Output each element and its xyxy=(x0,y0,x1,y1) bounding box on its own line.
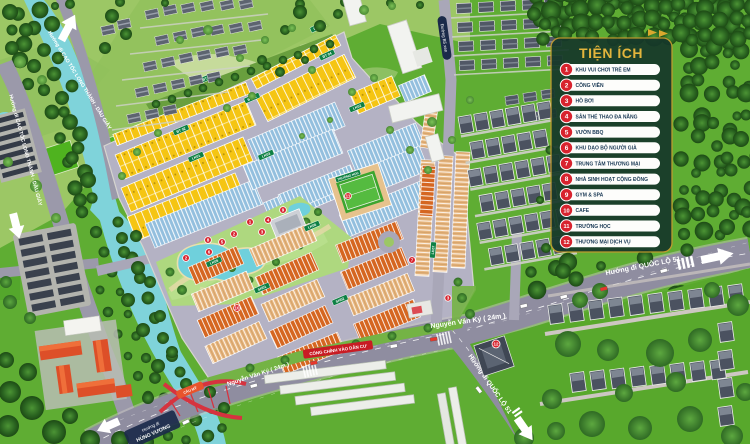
svg-text:KHU DẠO BỘ NGƯỜI GIÀ: KHU DẠO BỘ NGƯỜI GIÀ xyxy=(576,144,638,152)
svg-text:3: 3 xyxy=(565,98,569,105)
svg-text:11: 11 xyxy=(564,224,570,230)
svg-text:SÂN THỂ THAO ĐA NĂNG: SÂN THỂ THAO ĐA NĂNG xyxy=(576,113,638,120)
svg-text:TRƯỜNG HỌC: TRƯỜNG HỌC xyxy=(576,222,611,230)
svg-text:CÔNG VIÊN: CÔNG VIÊN xyxy=(576,81,604,89)
svg-text:8: 8 xyxy=(565,176,569,183)
svg-text:GYM & SPA: GYM & SPA xyxy=(576,193,604,199)
svg-text:CAFE: CAFE xyxy=(576,208,590,214)
svg-text:1: 1 xyxy=(565,67,569,74)
svg-text:LK07: LK07 xyxy=(431,245,436,254)
svg-text:KHU VUI CHƠI TRẺ EM: KHU VUI CHƠI TRẺ EM xyxy=(576,66,631,73)
svg-text:THƯƠNG MẠI DỊCH VỤ: THƯƠNG MẠI DỊCH VỤ xyxy=(576,240,631,246)
svg-text:VƯỜN BBQ: VƯỜN BBQ xyxy=(576,128,604,136)
svg-text:9: 9 xyxy=(565,192,569,199)
svg-text:11: 11 xyxy=(346,194,351,199)
svg-text:10: 10 xyxy=(563,209,569,215)
svg-text:7: 7 xyxy=(565,161,569,168)
svg-text:NHÀ SINH HOẠT CỘNG ĐỒNG: NHÀ SINH HOẠT CỘNG ĐỒNG xyxy=(576,175,649,183)
svg-text:TIỆN ÍCH: TIỆN ÍCH xyxy=(579,44,643,61)
svg-text:4: 4 xyxy=(565,114,569,121)
svg-text:12: 12 xyxy=(563,240,569,246)
svg-text:2: 2 xyxy=(565,82,569,89)
svg-text:TRUNG TÂM THƯƠNG MẠI: TRUNG TÂM THƯƠNG MẠI xyxy=(576,160,641,167)
svg-text:10: 10 xyxy=(234,306,240,311)
svg-text:5: 5 xyxy=(565,129,569,136)
svg-text:HỒ BƠI: HỒ BƠI xyxy=(576,98,595,105)
svg-text:12: 12 xyxy=(493,342,499,347)
svg-text:6: 6 xyxy=(565,145,569,152)
